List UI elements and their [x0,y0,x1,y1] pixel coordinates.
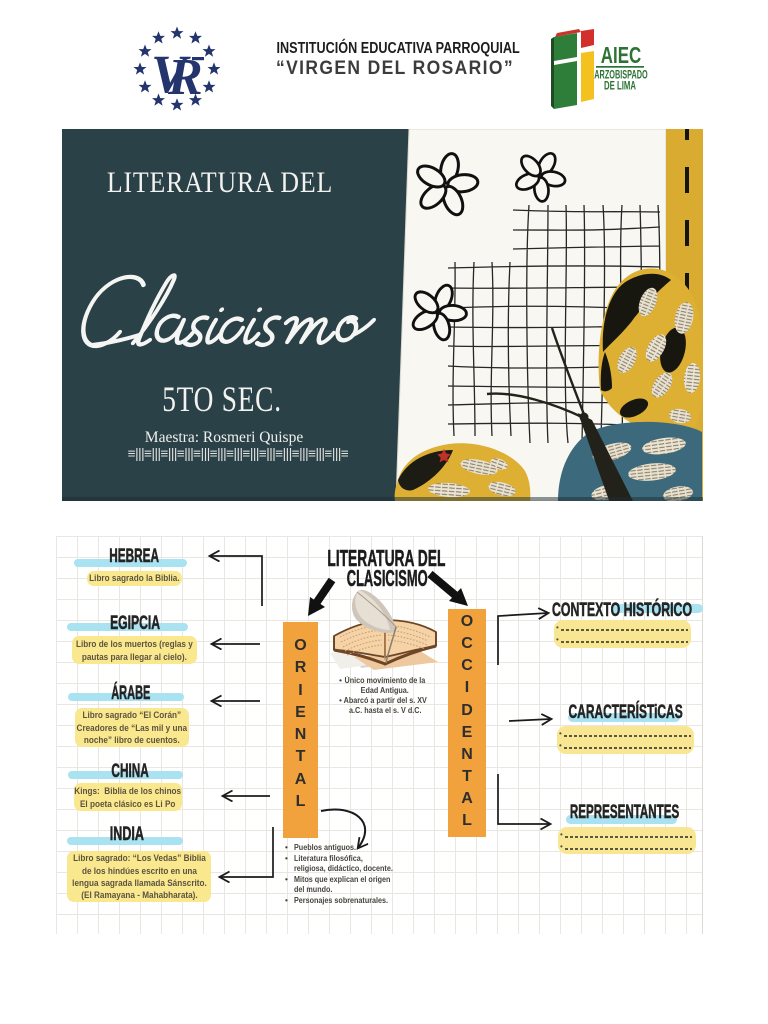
svg-text:AIEC: AIEC [601,42,642,68]
svg-text:DE LIMA: DE LIMA [604,80,636,93]
